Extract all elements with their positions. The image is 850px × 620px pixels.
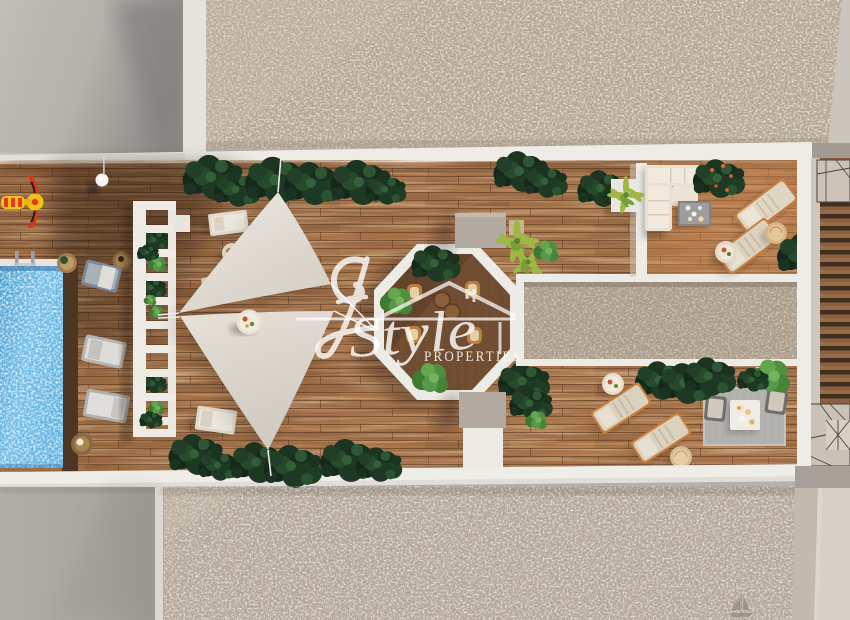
svg-text:PROPERTIES: PROPERTIES: [424, 349, 522, 365]
